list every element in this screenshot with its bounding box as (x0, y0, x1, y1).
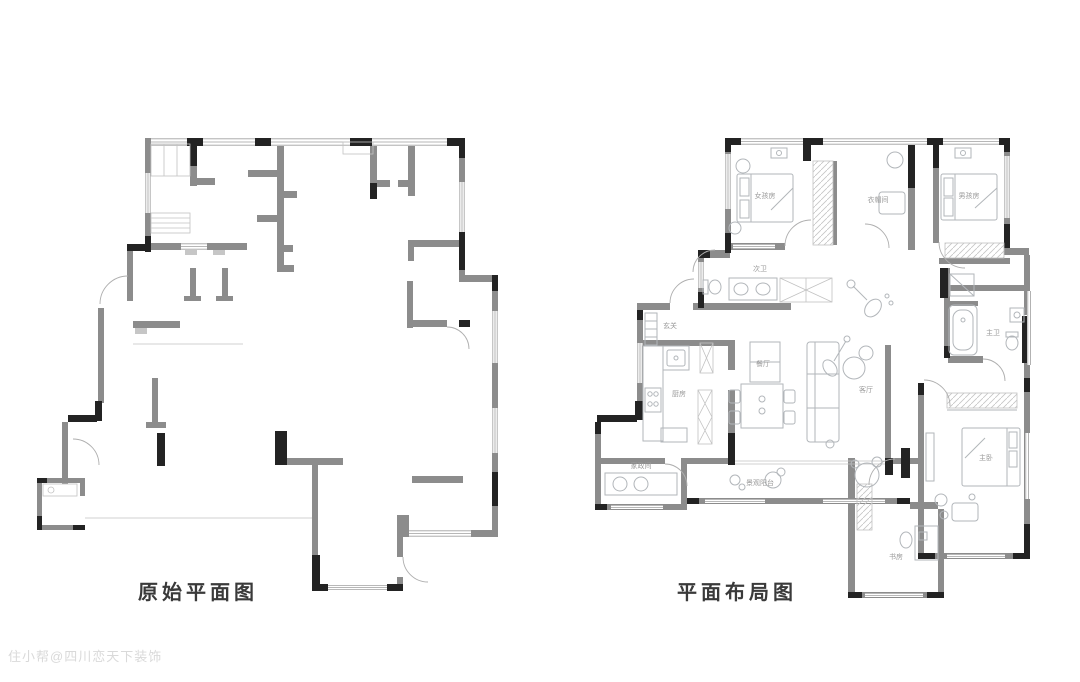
walls-gray (595, 138, 1030, 598)
original-floorplan-drawing (35, 128, 515, 598)
room-label-laundry: 家政间 (631, 461, 652, 470)
room-label-balcony: 景观阳台 (746, 478, 774, 487)
room-label-guest-bath: 次卫 (753, 264, 767, 273)
walls-gray (37, 138, 498, 586)
walls-black (37, 138, 498, 591)
room-label-cloakroom: 衣帽间 (868, 195, 889, 204)
floorplan-page: 女孩房 衣帽间 男孩房 次卫 玄关 厨房 餐厅 客厅 家政间 景观阳台 主卫 主… (0, 0, 1080, 682)
walls-black (595, 138, 1030, 598)
room-label-master-bath: 主卫 (986, 328, 1000, 337)
room-label-boy-bedroom: 男孩房 (959, 191, 980, 200)
room-label-living: 客厅 (859, 385, 873, 394)
room-label-entry: 玄关 (663, 321, 677, 330)
room-label-dining: 餐厅 (756, 359, 770, 368)
layout-plan-title: 平面布局图 (637, 576, 837, 605)
room-label-study: 书房 (889, 552, 903, 561)
windows (145, 138, 498, 590)
layout-floorplan-drawing: 女孩房 衣帽间 男孩房 次卫 玄关 厨房 餐厅 客厅 家政间 景观阳台 主卫 主… (575, 128, 1055, 598)
room-label-girl-bedroom: 女孩房 (755, 191, 776, 200)
room-label-kitchen: 厨房 (672, 389, 686, 398)
room-label-master-bedroom: 主卧 (979, 453, 993, 462)
watermark: 住小帮@四川恋天下装饰 (8, 646, 162, 665)
wardrobe-hatching (698, 161, 1017, 530)
original-plan-title: 原始平面图 (98, 576, 298, 605)
